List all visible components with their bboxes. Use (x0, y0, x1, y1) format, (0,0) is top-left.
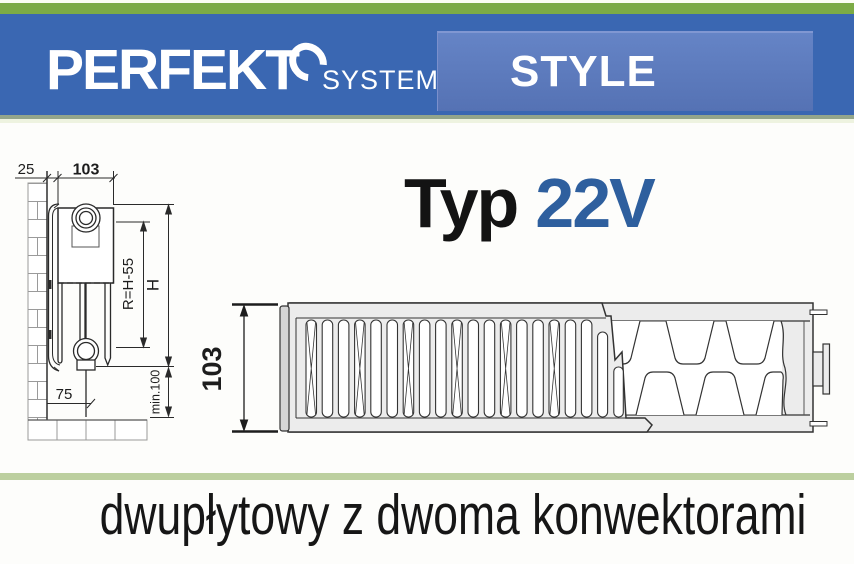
dim-floor-offset-label: 75 (56, 386, 73, 403)
dim-connection-label: R=H-55 (120, 258, 137, 310)
bottom-accent-line (0, 473, 854, 480)
caption-wrap: dwupłytowy z dwoma konwektorami (0, 486, 854, 546)
brand-name: PERFEKT (46, 42, 298, 99)
convector-fins (606, 321, 786, 415)
caption-text: dwupłytowy z dwoma konwektorami (100, 486, 807, 546)
dim-height-label: H (144, 279, 163, 291)
header-separator-light (0, 119, 854, 123)
left-end-cap (280, 306, 289, 431)
brand-header-bar: PERFEKT SYSTEM STYLE (0, 14, 854, 115)
type-label: Typ22V (404, 168, 654, 238)
dim-depth-top-view (232, 305, 278, 432)
type-value: 22V (535, 164, 654, 242)
dim-min-clearance-label: min.100 (149, 370, 163, 415)
wall-bricks (28, 171, 47, 420)
dim-wall-gap-label: 25 (18, 161, 35, 178)
product-image: PERFEKT SYSTEM STYLE (0, 0, 854, 564)
brand-subname: SYSTEM (322, 65, 439, 96)
floor-bricks (28, 420, 147, 440)
series-label: STYLE (438, 50, 657, 94)
brand-logo: PERFEKT SYSTEM (46, 42, 439, 108)
series-panel: STYLE (437, 31, 813, 111)
type-prefix: Typ (404, 164, 517, 242)
top-view-drawing: 103 (200, 290, 854, 440)
dim-depth-label: 103 (73, 162, 100, 179)
dim-depth-top-view-label: 103 (200, 346, 227, 391)
side-view-drawing: 25 103 R=H-55 H min.100 (10, 150, 200, 450)
